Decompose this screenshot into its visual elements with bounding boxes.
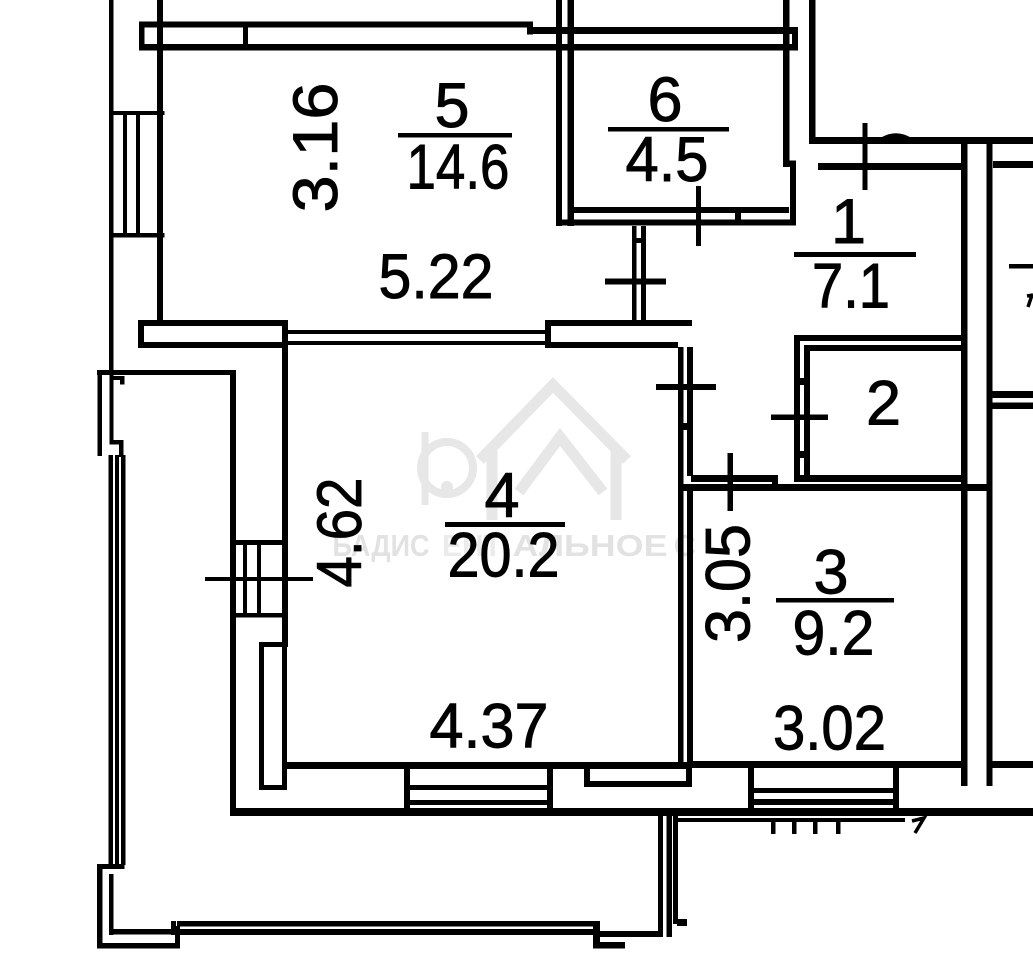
svg-text:3: 3 <box>813 538 848 608</box>
svg-text:7.1: 7.1 <box>812 252 890 322</box>
svg-text:4.37: 4.37 <box>430 692 549 762</box>
svg-text:4.5: 4.5 <box>626 125 709 195</box>
svg-text:3.16: 3.16 <box>281 83 351 213</box>
svg-text:14.6: 14.6 <box>407 133 510 203</box>
svg-text:3.02: 3.02 <box>773 694 886 764</box>
svg-text:4.62: 4.62 <box>305 478 375 588</box>
svg-text:1: 1 <box>831 187 866 257</box>
svg-text:5: 5 <box>434 71 469 141</box>
svg-text:3.05: 3.05 <box>694 524 764 643</box>
svg-text:9.2: 9.2 <box>793 599 875 669</box>
svg-text:5.22: 5.22 <box>379 242 494 312</box>
svg-text:2: 2 <box>866 369 901 439</box>
svg-text:20.2: 20.2 <box>448 521 560 591</box>
